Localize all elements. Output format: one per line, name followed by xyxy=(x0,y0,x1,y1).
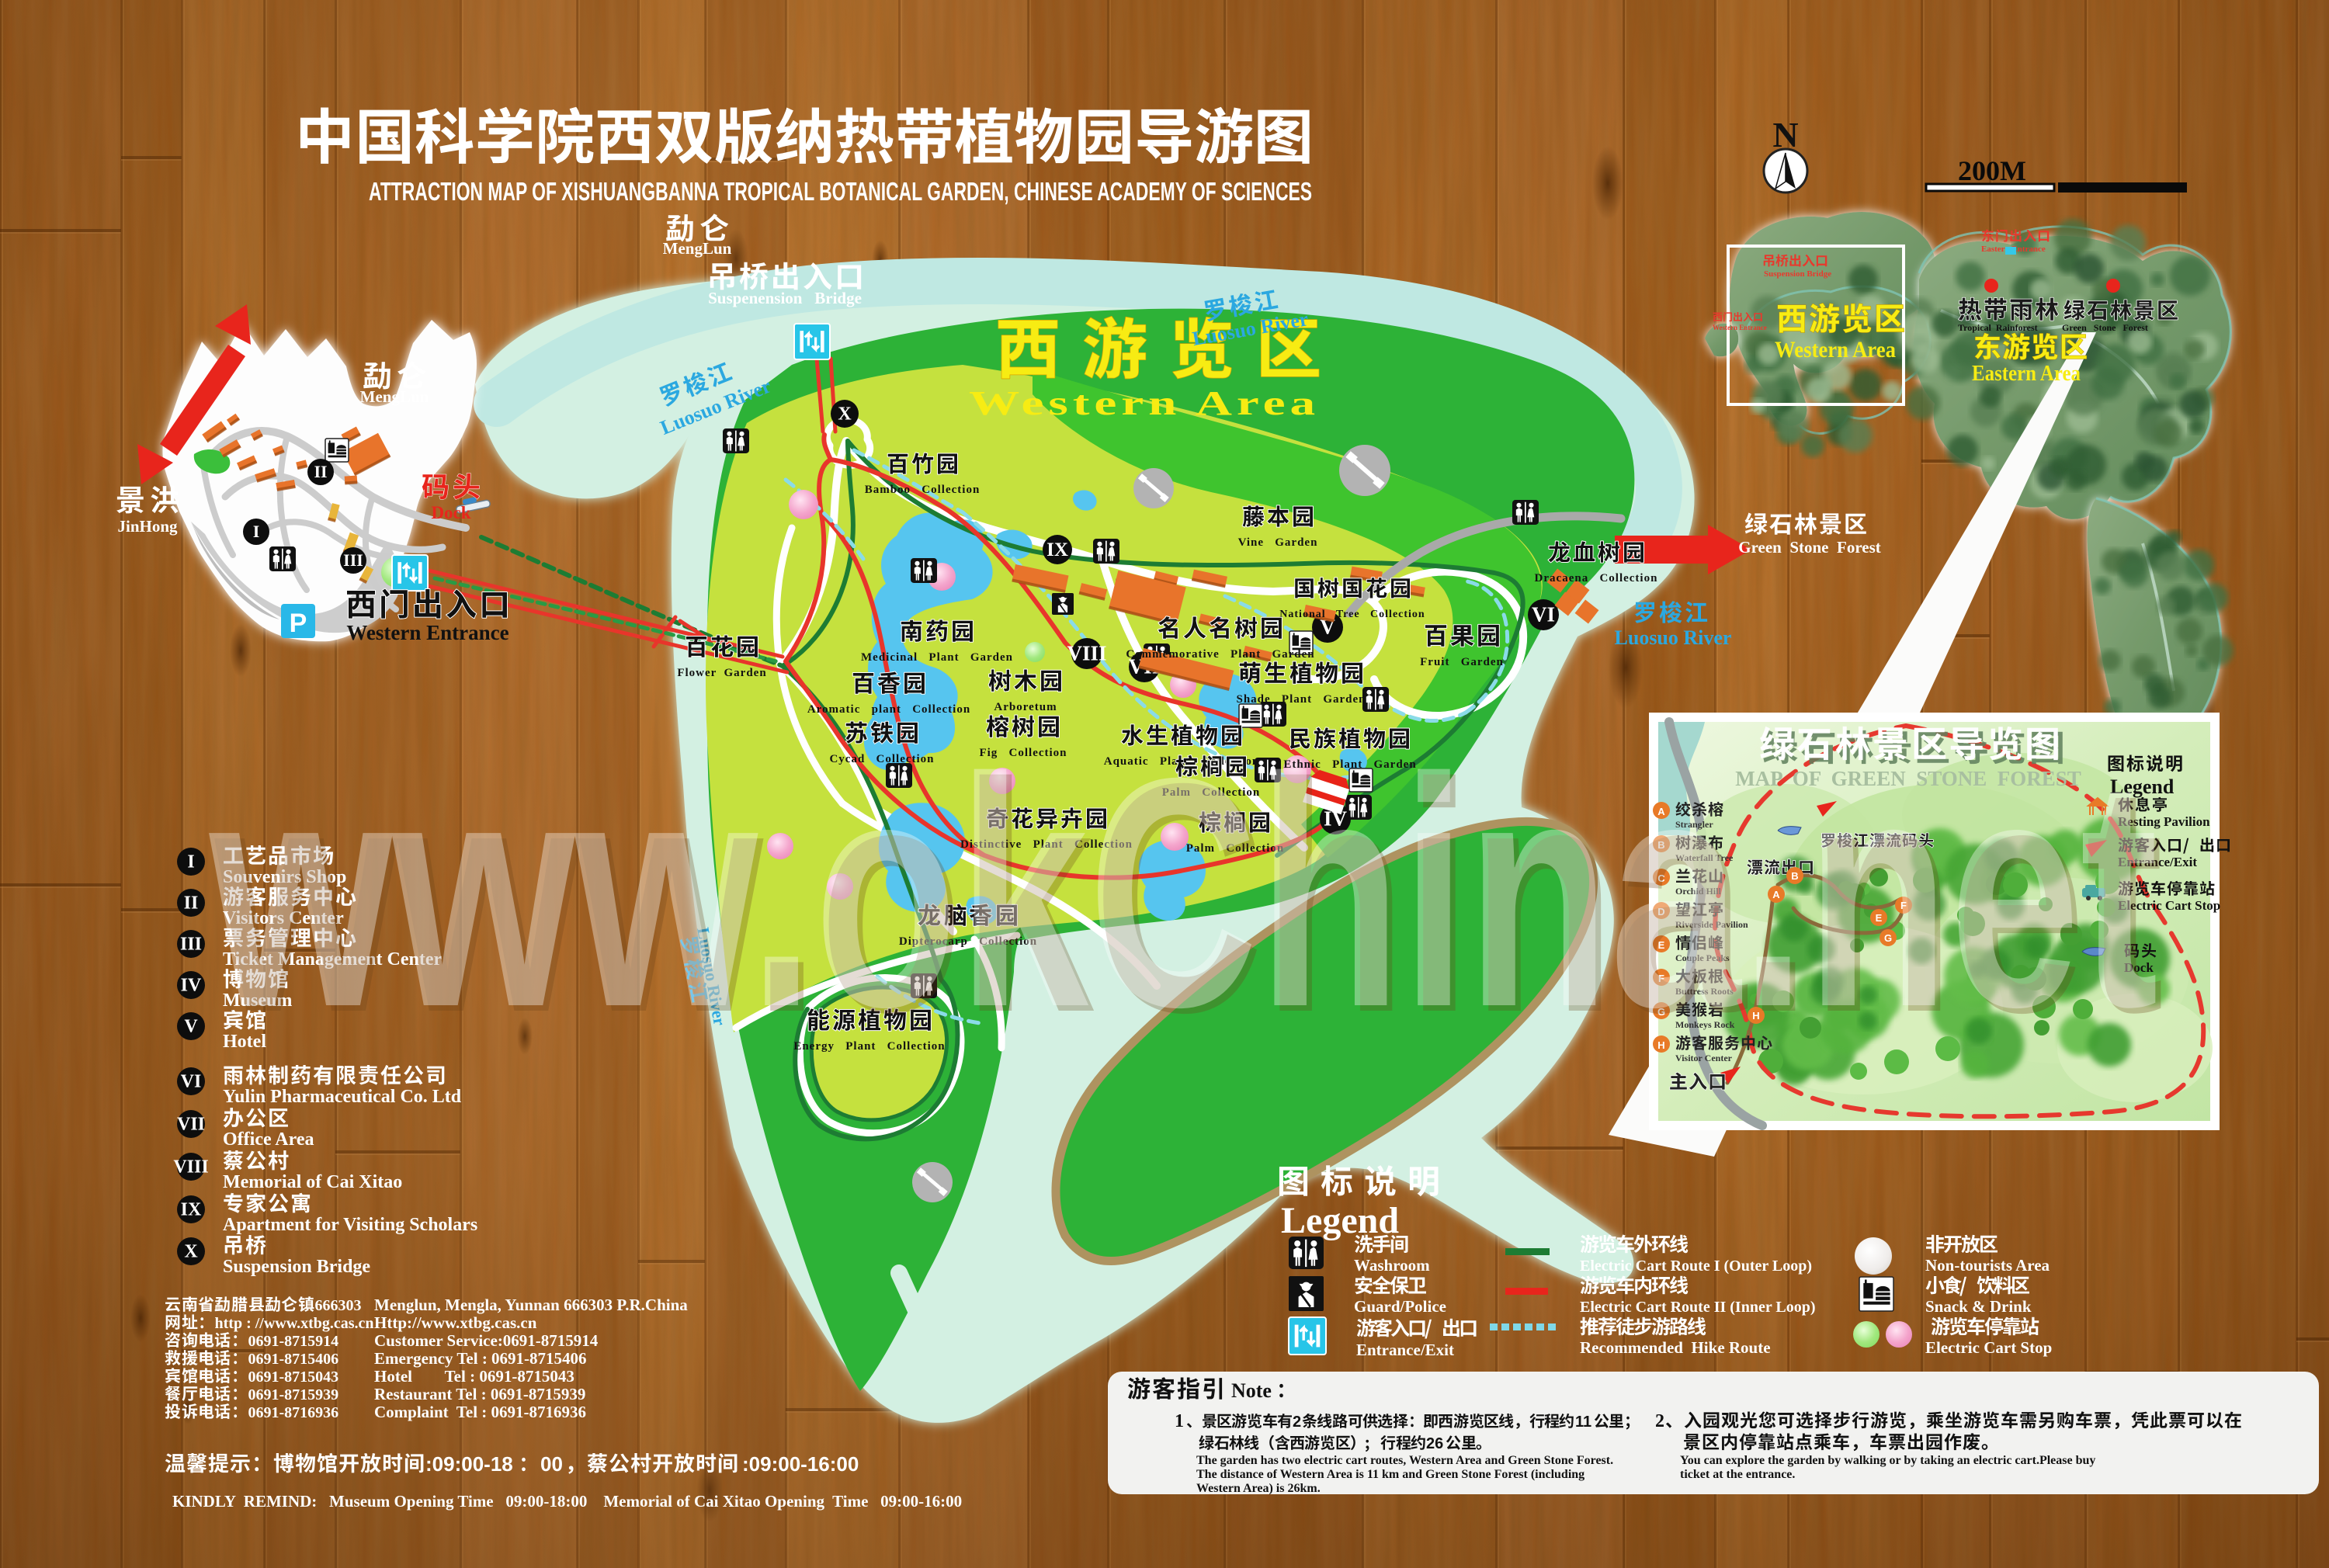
svg-text:National Tree Collection: National Tree Collection xyxy=(1279,609,1425,620)
svg-text:ATTRACTION MAP OF XISHUANGBANN: ATTRACTION MAP OF XISHUANGBANNA TROPICAL… xyxy=(369,177,1312,206)
svg-text:Recommended Hike Route: Recommended Hike Route xyxy=(1580,1338,1771,1357)
svg-text:Bamboo Collection: Bamboo Collection xyxy=(865,484,981,496)
svg-text:Green Stone Forest: Green Stone Forest xyxy=(1738,538,1881,557)
svg-text:Non-tourists Area: Non-tourists Area xyxy=(1925,1256,2050,1275)
svg-text:Electric Cart Stop: Electric Cart Stop xyxy=(1925,1338,2052,1357)
svg-text:I: I xyxy=(253,522,260,541)
svg-text:Washroom: Washroom xyxy=(1354,1256,1430,1275)
svg-text:VI: VI xyxy=(181,1072,202,1092)
svg-text:200M: 200M xyxy=(1958,155,2026,186)
svg-text:Vine Garden: Vine Garden xyxy=(1238,536,1318,549)
svg-text:The distance of Western Area i: The distance of Western Area is 11 km an… xyxy=(1196,1468,1584,1481)
svg-text:0691-8715914: 0691-8715914 xyxy=(248,1333,339,1350)
svg-text:MengLun: MengLun xyxy=(360,387,429,406)
svg-text:Western Area) is 26km.: Western Area) is 26km. xyxy=(1196,1482,1321,1495)
svg-text:II: II xyxy=(184,893,199,914)
svg-text:Customer Service:0691-8715914: Customer Service:0691-8715914 xyxy=(374,1331,599,1350)
svg-text:0691-8715043: 0691-8715043 xyxy=(248,1369,339,1386)
svg-text:Shade Plant Garden: Shade Plant Garden xyxy=(1236,693,1366,706)
svg-text:Flower Garden: Flower Garden xyxy=(677,667,766,679)
svg-text::09:00-18: :09:00-18 xyxy=(425,1452,513,1476)
svg-text:Electric Cart Route II (Inner: Electric Cart Route II (Inner Loop) xyxy=(1580,1299,1815,1316)
svg-text:V: V xyxy=(184,1017,198,1037)
svg-text:Western Area: Western Area xyxy=(969,384,1320,422)
svg-text:Snack & Drink: Snack & Drink xyxy=(1925,1297,2032,1316)
svg-text:Entrance/Exit: Entrance/Exit xyxy=(1356,1341,1454,1359)
svg-text:Yulin Pharmaceutical Co. Ltd: Yulin Pharmaceutical Co. Ltd xyxy=(223,1087,462,1107)
svg-text:Western Entrance: Western Entrance xyxy=(1713,324,1767,331)
svg-text:Legend: Legend xyxy=(1281,1200,1399,1241)
svg-text:IX: IX xyxy=(1046,539,1068,560)
svg-text:Electric Cart Route I (Outer L: Electric Cart Route I (Outer Loop) xyxy=(1580,1258,1812,1275)
svg-text::09:00-16:00: :09:00-16:00 xyxy=(742,1452,859,1476)
svg-text:0691-8715406: 0691-8715406 xyxy=(248,1351,339,1368)
svg-text:X: X xyxy=(184,1242,198,1262)
svg-text:Green Stone Forest: Green Stone Forest xyxy=(2062,322,2148,333)
svg-text:0691-8716936: 0691-8716936 xyxy=(248,1404,339,1421)
svg-text:http : //www.xtbg.cas.cn: http : //www.xtbg.cas.cn xyxy=(215,1315,374,1332)
svg-text:Luosuo River: Luosuo River xyxy=(1615,626,1732,649)
svg-text:IV: IV xyxy=(181,976,202,996)
svg-text:Note: Note xyxy=(1231,1379,1272,1402)
svg-text:666303: 666303 xyxy=(315,1297,362,1314)
svg-text:N: N xyxy=(1772,115,1798,154)
svg-text:Menglun, Mengla, Yunnan 666303: Menglun, Mengla, Yunnan 666303 P.R.China xyxy=(374,1296,688,1314)
svg-text:The garden has two electric ca: The garden has two electric cart routes,… xyxy=(1196,1454,1613,1467)
svg-text:JinHong: JinHong xyxy=(117,517,178,536)
svg-text:II: II xyxy=(314,462,327,481)
svg-text:KINDLY REMIND: Museum Openi: KINDLY REMIND: Museum Opening Time 09:00… xyxy=(172,1492,962,1511)
svg-text:Office Area: Office Area xyxy=(223,1129,314,1150)
svg-text:Memorial of Cai Xitao: Memorial of Cai Xitao xyxy=(223,1172,402,1192)
svg-text:2: 2 xyxy=(1655,1411,1664,1431)
svg-text:Guard/Police: Guard/Police xyxy=(1354,1297,1446,1316)
svg-text:Fruit Garden: Fruit Garden xyxy=(1420,656,1504,668)
svg-text:VI: VI xyxy=(1532,602,1555,626)
svg-text:1: 1 xyxy=(1175,1411,1184,1431)
svg-text:III: III xyxy=(180,935,202,955)
svg-text:Western Entrance: Western Entrance xyxy=(346,621,508,644)
svg-text:Commemorative Plant Garden: Commemorative Plant Garden xyxy=(1126,648,1314,661)
svg-text:Suspension Bridge: Suspension Bridge xyxy=(223,1257,370,1277)
svg-text:2: 2 xyxy=(1293,1414,1301,1431)
svg-text:Medicinal Plant Garden: Medicinal Plant Garden xyxy=(861,651,1013,664)
svg-text:Dock: Dock xyxy=(431,503,470,522)
svg-text:Western Area: Western Area xyxy=(1775,337,1896,363)
svg-text:P: P xyxy=(290,609,307,638)
svg-text:I: I xyxy=(187,852,194,872)
svg-text:11: 11 xyxy=(1575,1414,1591,1431)
svg-text:VII: VII xyxy=(177,1115,205,1135)
svg-text:VIII: VIII xyxy=(173,1157,208,1178)
svg-text:00: 00 xyxy=(540,1452,563,1476)
svg-text:Restaurant Tel : 0691-8715939: Restaurant Tel : 0691-8715939 xyxy=(374,1385,585,1403)
svg-text:X: X xyxy=(838,404,852,425)
svg-text:Dracaena Collection: Dracaena Collection xyxy=(1535,572,1658,585)
svg-text:Suspension Bridge: Suspension Bridge xyxy=(1764,269,1831,279)
svg-text:ticket at the entrance.: ticket at the entrance. xyxy=(1680,1468,1795,1481)
svg-text:www.okChina.net: www.okChina.net xyxy=(206,711,2158,1075)
svg-text:Http://www.xtbg.cas.cn: Http://www.xtbg.cas.cn xyxy=(374,1313,537,1332)
svg-text:VIII: VIII xyxy=(1067,641,1106,664)
svg-text:Apartment for Visiting Scholar: Apartment for Visiting Scholars xyxy=(223,1215,477,1235)
svg-text:Suspenension Bridge: Suspenension Bridge xyxy=(708,289,862,307)
svg-text:Emergency Tel : 0691-8715406: Emergency Tel : 0691-8715406 xyxy=(374,1349,587,1368)
svg-text:MengLun: MengLun xyxy=(663,239,732,258)
svg-text:III: III xyxy=(343,550,363,570)
svg-text:You can explore the garden by: You can explore the garden by walking or… xyxy=(1680,1454,2095,1467)
svg-text:Tropical Rainforest: Tropical Rainforest xyxy=(1958,322,2038,333)
svg-text:26: 26 xyxy=(1426,1435,1443,1452)
svg-text:0691-8715939: 0691-8715939 xyxy=(248,1386,339,1403)
svg-text:Hotel Tel : 0691-871504: Hotel Tel : 0691-8715043 xyxy=(374,1367,574,1386)
svg-text:Eastern Area: Eastern Area xyxy=(1972,362,2081,386)
svg-text:Complaint Tel : 0691-8716936: Complaint Tel : 0691-8716936 xyxy=(374,1403,586,1421)
svg-text:IX: IX xyxy=(181,1200,202,1220)
